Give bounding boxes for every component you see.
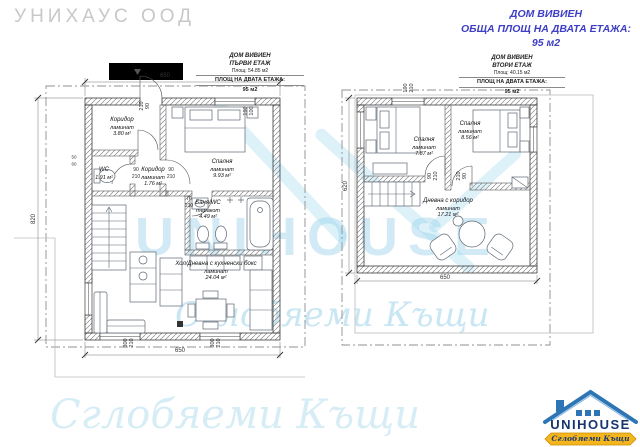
room-label-hall: Коридор ламинат 1.76 м² bbox=[141, 167, 165, 188]
floor2-total-label: ПЛОЩ НА ДВАТА ЕТАЖА: bbox=[459, 78, 565, 88]
floor1-total-label: ПЛОЩ НА ДВАТА ЕТАЖА: bbox=[196, 76, 304, 86]
project-title: ДОМ ВИВИЕН bbox=[450, 7, 640, 22]
floor2-title-block: ДОМ ВИВИЕН ВТОРИ ЕТАЖ Площ: 40.15 м2 ПЛО… bbox=[459, 55, 565, 96]
room-area: 8.56 м² bbox=[458, 135, 482, 142]
dim-bottom2-650: 650 bbox=[440, 275, 450, 281]
window bbox=[215, 98, 255, 105]
room-area: 4.49 м² bbox=[195, 214, 220, 221]
stairs bbox=[92, 205, 126, 270]
floor1-total-value: 95 м2 bbox=[196, 86, 304, 94]
nightstand bbox=[366, 107, 376, 120]
floor1-project: ДОМ ВИВИЕН bbox=[196, 53, 304, 61]
room-area: 7.87 м² bbox=[412, 151, 436, 158]
room-label-living: Хол/Дневна с кухненски бокс ламинат 24.0… bbox=[175, 261, 256, 282]
dim-value: 210 bbox=[132, 174, 140, 181]
total-area-value: 95 м2 bbox=[450, 36, 640, 51]
chimney bbox=[177, 321, 183, 327]
window bbox=[392, 98, 424, 105]
window bbox=[357, 112, 364, 148]
dim-50: 50 bbox=[71, 155, 76, 160]
dim-left-620: 620 bbox=[343, 181, 349, 191]
floor1-dimension-lines bbox=[34, 78, 283, 358]
armchair bbox=[485, 232, 516, 263]
dim-hall-door-left: 90 210 bbox=[132, 167, 140, 180]
entrance-canopy bbox=[109, 63, 183, 80]
nightstand bbox=[172, 107, 183, 118]
room-label-wc: WC 1.91 м² bbox=[95, 167, 113, 181]
logo-name: UNIHOUSE bbox=[541, 417, 640, 432]
window bbox=[530, 127, 537, 152]
dresser bbox=[373, 163, 407, 174]
nightstand bbox=[520, 107, 529, 118]
room-finish: теракот bbox=[195, 208, 220, 215]
room-area: 1.91 м² bbox=[95, 175, 113, 182]
room-name: Коридор bbox=[141, 167, 165, 175]
dim-window: 210 bbox=[129, 338, 135, 347]
room-label-corridor: Коридор ламинат 3.80 м² bbox=[110, 117, 134, 138]
dim-door: 90 bbox=[462, 173, 468, 179]
room-name: Спалня bbox=[210, 159, 234, 167]
sheet-header: ДОМ ВИВИЕН ОБЩА ПЛОЩ НА ДВАТА ЕТАЖА: 95 … bbox=[450, 7, 640, 51]
dim-window: 210 bbox=[409, 83, 415, 92]
stairs bbox=[364, 182, 420, 206]
floor1-title-block: ДОМ ВИВИЕН ПЪРВИ ЕТАЖ Площ: 54.85 м2 ПЛО… bbox=[196, 53, 304, 94]
unihouse-logo: UNIHOUSE Сглобяеми Къщи bbox=[541, 386, 640, 447]
room-finish: ламинат bbox=[175, 269, 256, 276]
room-area: 3.80 м² bbox=[110, 131, 134, 138]
floor2-project: ДОМ ВИВИЕН bbox=[459, 55, 565, 63]
room-label-living2: Дневна с коридор ламинат 17.21 м² bbox=[423, 198, 473, 219]
floor1-plan bbox=[14, 63, 305, 377]
room-name: Спалня bbox=[458, 121, 482, 129]
floor1-name: ПЪРВИ ЕТАЖ bbox=[196, 61, 304, 69]
dim-window: 210 bbox=[216, 338, 222, 347]
dim-bottom-650: 650 bbox=[175, 348, 185, 354]
dim-left-820: 820 bbox=[31, 214, 37, 224]
nightstand bbox=[366, 140, 376, 153]
dim-bath-door: 70 210 bbox=[185, 196, 193, 209]
bed bbox=[185, 107, 245, 152]
dim-top-650: 650 bbox=[160, 73, 170, 79]
coffee-table bbox=[453, 216, 485, 247]
room-name: Коридор bbox=[110, 117, 134, 125]
armchair bbox=[428, 232, 459, 263]
window bbox=[85, 283, 92, 315]
room-area: 17.21 м² bbox=[423, 212, 473, 219]
nightstand bbox=[520, 141, 529, 152]
room-area: 9.93 м² bbox=[210, 173, 234, 180]
logo-tagline: Сглобяеми Къщи bbox=[541, 434, 640, 443]
logo-chimney bbox=[556, 400, 564, 412]
floorplan-sheet: УНИХАУС ООД UNIHOUSE Сглобяеми Къщи Сгло… bbox=[0, 0, 640, 447]
dim-hall-door-right: 90 210 bbox=[167, 167, 175, 180]
room-label-bedroom2: Спалня ламинат 8.56 м² bbox=[458, 121, 482, 142]
room-finish: ламинат bbox=[458, 129, 482, 136]
dim-entry-door: 90 bbox=[145, 103, 151, 109]
room-label-bath: Баня/WC теракот 4.49 м² bbox=[195, 200, 220, 221]
floor2-total-value: 95 м2 bbox=[459, 88, 565, 96]
room-name: WC bbox=[95, 167, 113, 175]
dim-value: 210 bbox=[167, 174, 175, 181]
room-name: Баня/WC bbox=[195, 200, 220, 208]
wardrobe bbox=[512, 177, 528, 188]
room-name: Дневна с коридор bbox=[423, 198, 473, 206]
room-area: 1.76 м² bbox=[141, 181, 165, 188]
room-area: 24.04 м² bbox=[175, 275, 256, 282]
room-name: Спалня bbox=[412, 137, 436, 145]
room-finish: ламинат bbox=[110, 125, 134, 132]
total-area-label: ОБЩА ПЛОЩ НА ДВАТА ЕТАЖА: bbox=[450, 22, 640, 37]
room-label-bedroom1: Спалня ламинат 7.87 м² bbox=[412, 137, 436, 158]
floor1-furniture bbox=[92, 107, 273, 333]
room-finish: ламинат bbox=[210, 167, 234, 174]
room-name: Хол/Дневна с кухненски бокс bbox=[175, 261, 256, 269]
floor2-name: ВТОРИ ЕТАЖ bbox=[459, 63, 565, 71]
room-finish: ламинат bbox=[423, 206, 473, 213]
dim-door: 210 bbox=[433, 171, 439, 180]
floor1-area: Площ: 54.85 м2 bbox=[196, 68, 304, 76]
dim-60: 60 bbox=[71, 162, 76, 167]
floor2-area: Площ: 40.15 м2 bbox=[459, 70, 565, 78]
room-label-bedroom: Спалня ламинат 9.93 м² bbox=[210, 159, 234, 180]
dim-window: 100 bbox=[249, 106, 255, 115]
dim-value: 210 bbox=[185, 203, 193, 210]
room-finish: ламинат bbox=[412, 145, 436, 152]
room-finish: ламинат bbox=[141, 175, 165, 182]
dining-table bbox=[188, 291, 234, 329]
